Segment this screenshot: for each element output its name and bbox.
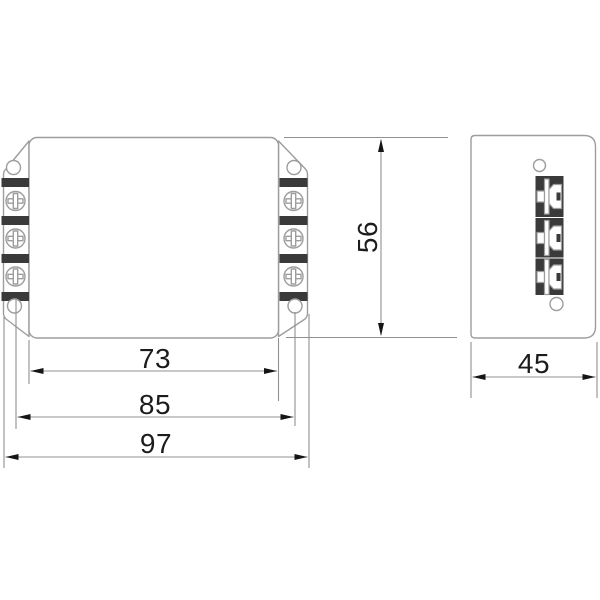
screw-cross-v xyxy=(291,231,295,246)
arrow-down xyxy=(378,323,384,336)
terminal-head-notch xyxy=(557,273,561,281)
mounting-hole xyxy=(550,298,563,311)
dim-label-depth: 45 xyxy=(518,348,550,379)
mounting-hole xyxy=(534,160,546,172)
dim-label-body-width: 73 xyxy=(139,343,171,374)
terminal-shank xyxy=(537,191,545,202)
terminal-band xyxy=(2,216,30,225)
terminal-screw xyxy=(6,229,25,248)
terminal-head-notch xyxy=(557,234,561,242)
mounting-hole xyxy=(288,299,302,313)
terminal-washer xyxy=(545,221,550,256)
dim-label-height: 56 xyxy=(352,221,383,253)
terminal-screw xyxy=(6,267,25,286)
terminal-head-notch xyxy=(557,193,561,201)
side-view xyxy=(471,136,596,339)
screw-cross-v xyxy=(291,194,295,209)
mounting-hole xyxy=(7,161,21,175)
terminal-band xyxy=(280,178,308,187)
arrow-left xyxy=(31,368,44,374)
arrow-left xyxy=(6,454,19,460)
arrow-left xyxy=(18,414,31,420)
screw-cross-v xyxy=(291,269,295,284)
screw-cross-v xyxy=(13,194,17,209)
arrow-up xyxy=(378,139,384,152)
arrow-right xyxy=(295,454,308,460)
screw-cross-v xyxy=(13,269,17,284)
terminal-band xyxy=(2,254,30,263)
terminal-washer xyxy=(545,179,550,214)
terminal-screw xyxy=(284,229,303,248)
arrow-left xyxy=(473,374,486,380)
screw-cross-v xyxy=(13,231,17,246)
terminal-band xyxy=(280,216,308,225)
terminal-shank xyxy=(537,272,545,283)
terminal-shank xyxy=(537,233,545,244)
terminal-screw xyxy=(284,192,303,211)
arrow-right xyxy=(281,414,294,420)
arrow-right xyxy=(264,368,277,374)
technical-drawing: 73 85 97 56 45 xyxy=(0,0,600,600)
terminal-band xyxy=(280,254,308,263)
terminal-band xyxy=(2,178,30,187)
drawing-canvas: 73 85 97 56 45 xyxy=(0,0,600,600)
dim-label-hole-spacing: 85 xyxy=(139,389,171,420)
terminal-screws-right xyxy=(284,192,303,287)
terminal-washer xyxy=(545,260,550,295)
mounting-hole xyxy=(287,161,301,175)
terminal-screws-left xyxy=(6,192,25,287)
terminal-screw xyxy=(6,192,25,211)
mounting-hole xyxy=(8,299,22,313)
front-view-body xyxy=(29,138,279,339)
terminal-screw xyxy=(284,267,303,286)
arrow-right xyxy=(583,374,596,380)
dim-label-overall-width: 97 xyxy=(140,428,172,459)
front-view xyxy=(2,138,308,339)
